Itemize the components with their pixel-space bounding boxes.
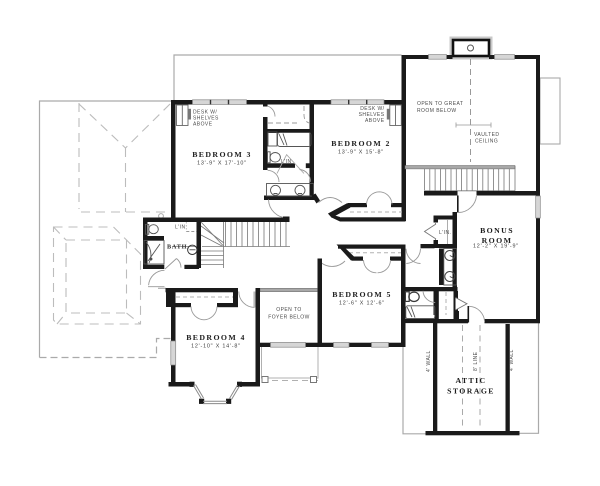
- svg-text:BATH: BATH: [167, 244, 187, 251]
- svg-text:BEDROOM 3: BEDROOM 3: [192, 150, 252, 159]
- svg-text:ABOVE: ABOVE: [193, 122, 213, 128]
- svg-text:BEDROOM 5: BEDROOM 5: [332, 290, 392, 299]
- svg-text:STORAGE: STORAGE: [447, 387, 495, 396]
- svg-text:12'-2" X 19'-9": 12'-2" X 19'-9": [473, 244, 519, 250]
- svg-text:VAULTED: VAULTED: [474, 132, 499, 138]
- svg-text:4' WALL: 4' WALL: [509, 349, 515, 371]
- svg-text:BEDROOM 4: BEDROOM 4: [186, 333, 246, 342]
- svg-text:12'-10" X 14'-8": 12'-10" X 14'-8": [191, 344, 241, 350]
- svg-text:ABOVE: ABOVE: [365, 118, 385, 124]
- svg-text:OPEN TO GREAT: OPEN TO GREAT: [417, 101, 463, 107]
- svg-text:ATTIC: ATTIC: [455, 376, 486, 385]
- svg-text:L'IN.: L'IN.: [439, 230, 451, 236]
- svg-text:FOYER BELOW: FOYER BELOW: [268, 315, 310, 321]
- svg-text:OPEN TO: OPEN TO: [276, 307, 301, 313]
- svg-text:BONUS: BONUS: [480, 226, 514, 235]
- svg-text:12'-6" X 12'-6": 12'-6" X 12'-6": [339, 301, 385, 307]
- svg-text:13'-9" X 17'-10": 13'-9" X 17'-10": [197, 161, 247, 167]
- svg-text:L'IN: L'IN: [175, 225, 186, 231]
- svg-text:BEDROOM 2: BEDROOM 2: [331, 139, 391, 148]
- svg-text:4' WALL: 4' WALL: [426, 350, 432, 372]
- svg-text:13'-9" X 15'-8": 13'-9" X 15'-8": [338, 150, 384, 156]
- svg-text:CEILING: CEILING: [475, 139, 498, 145]
- svg-text:8' LINE: 8' LINE: [473, 351, 479, 371]
- svg-text:L'IN: L'IN: [281, 159, 292, 165]
- svg-text:ROOM BELOW: ROOM BELOW: [417, 108, 457, 114]
